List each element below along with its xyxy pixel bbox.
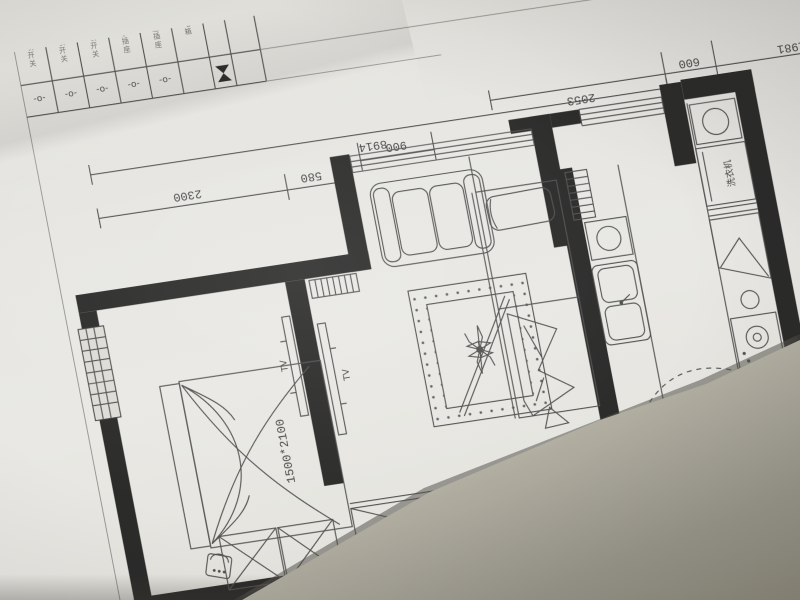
tv-label: TV [341, 367, 353, 382]
dim-580: 580 [299, 168, 323, 185]
dim-1981: 1981 [776, 38, 800, 56]
washer-cabinet: 洗衣机 [696, 141, 756, 206]
floorplan-photo: 单联开关 双联开关 三联开关 防水插座 普通插座 配电箱 -o- -o- -o-… [0, 0, 800, 600]
dim-900: 900 [384, 138, 408, 155]
washing-machine [689, 98, 742, 144]
dim-2053: 2053 [566, 90, 597, 108]
vent-hole [739, 289, 760, 309]
dim-2300: 2300 [172, 186, 203, 204]
basin [585, 216, 633, 260]
rug [408, 273, 552, 426]
bed-size-label: 1500*2100 [273, 418, 299, 484]
bedroom-window-grid [78, 326, 121, 421]
dim-8914: 8914 [357, 137, 388, 155]
dim-600: 600 [677, 54, 701, 71]
tv-label: TV [279, 358, 291, 373]
washer-label: 洗衣机 [721, 159, 738, 188]
